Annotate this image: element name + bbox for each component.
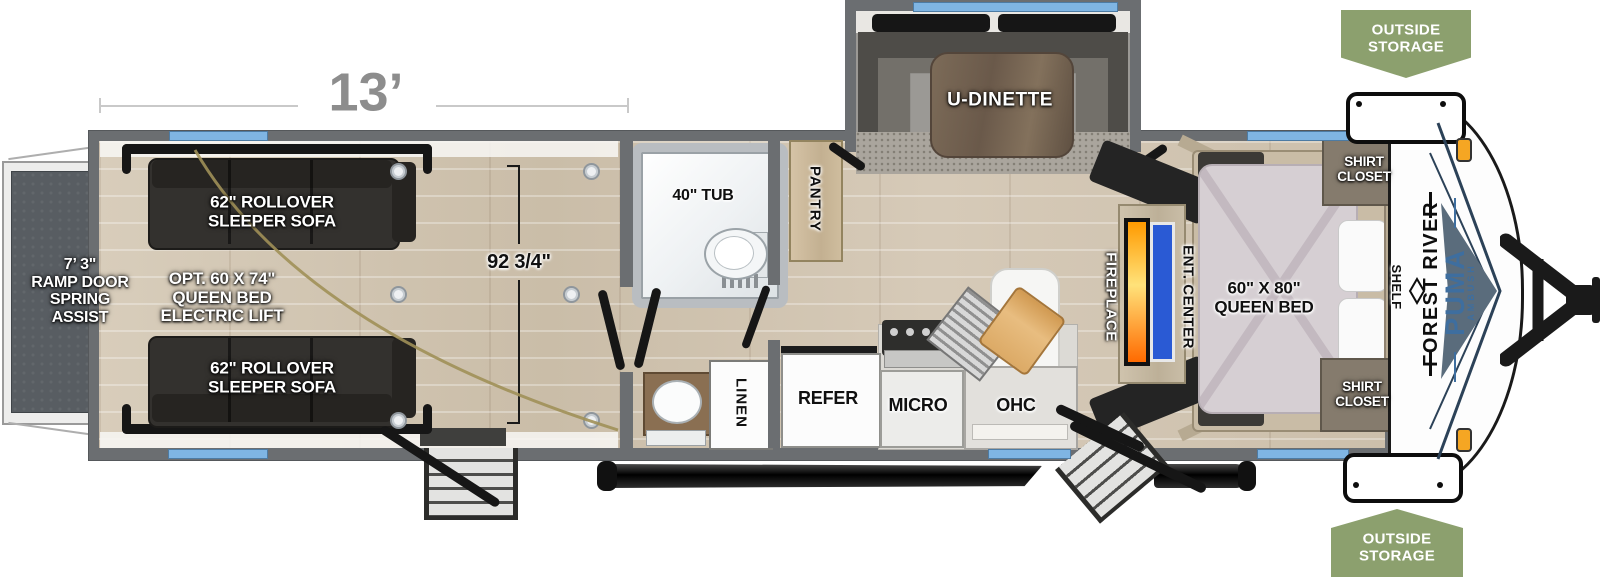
bed-lift-frame-bottom-left-post	[122, 404, 131, 434]
dinette-slide-wall-right	[1130, 0, 1141, 152]
tie-down-ring	[583, 412, 600, 429]
garage-window-bottom	[168, 449, 268, 459]
tie-down-ring	[563, 286, 580, 303]
tv-screen	[1150, 222, 1175, 362]
puma-rule-bottom	[1454, 352, 1456, 382]
forest-river-rule-top	[1429, 192, 1432, 218]
entry-mat-garage-door	[420, 428, 506, 446]
linen-closet	[709, 360, 773, 450]
length-dim-label: 13’	[328, 63, 403, 122]
floorplan-canvas: 13’ OUTSIDE STORAGE OUTSIDE STORAGE U-DI…	[0, 0, 1600, 577]
outside-storage-badge-bottom	[1331, 509, 1463, 577]
ramp-hinge-line-top	[8, 146, 95, 160]
garage-bath-wall-lower	[620, 372, 633, 448]
storage-box-top-rivet-left	[1356, 101, 1362, 107]
marker-light-bottom	[1456, 428, 1472, 452]
length-dim-line-left	[100, 105, 298, 107]
storage-box-bottom-rivet-right	[1437, 482, 1443, 488]
range-burner	[890, 328, 898, 336]
sofa-bottom-cushion-gap-1	[228, 338, 231, 422]
ramp-door-panel	[11, 171, 92, 413]
outside-storage-badge-top	[1341, 10, 1471, 78]
width-dim-tick-top	[507, 165, 520, 167]
door-window-bottom	[988, 449, 1071, 459]
dinette-table-leaf-left	[872, 14, 990, 32]
sleeper-sofa-bottom-back	[152, 394, 392, 422]
dinette-table	[930, 52, 1074, 158]
forest-river-rule-bottom	[1429, 350, 1432, 376]
bedroom-window-bottom	[1257, 449, 1349, 459]
tie-down-ring	[390, 163, 407, 180]
bath-sink-bowl	[652, 380, 702, 424]
bathtub	[632, 143, 788, 308]
sofa-top-cushion-gap-1	[228, 160, 231, 244]
bedroom-window-top	[1247, 131, 1349, 141]
bed-lift-frame-top	[122, 144, 432, 154]
puma-rule-top	[1454, 198, 1456, 228]
overhead-cabinet-trim	[972, 424, 1068, 440]
width-dim-tick-bottom	[507, 422, 520, 424]
garage-platform-bottom	[100, 432, 618, 448]
bed-lift-frame-top-left-post	[122, 144, 131, 174]
dinette-slide-window	[913, 2, 1118, 12]
bed-lift-frame-top-right-post	[423, 144, 432, 174]
range-burner	[906, 328, 914, 336]
length-dim-line-right	[436, 105, 628, 107]
garage-window-top	[169, 131, 268, 141]
bath-step	[646, 430, 706, 446]
tie-down-ring	[390, 286, 407, 303]
sofa-top-cushion-gap-2	[310, 160, 313, 244]
sleeper-sofa-top-back	[152, 160, 392, 188]
hitch-a-frame	[1500, 225, 1600, 375]
microwave	[880, 370, 964, 448]
sofa-bottom-armrest	[392, 338, 416, 418]
bath-kitchen-wall-lower	[768, 340, 780, 448]
awning-roller-left	[606, 464, 1042, 488]
marker-light-top	[1456, 138, 1472, 162]
dinette-table-leaf-right	[998, 14, 1116, 32]
awning-end-cap-right	[1238, 461, 1256, 491]
length-dim-tick-right	[627, 98, 629, 113]
storage-box-bottom-rivet-left	[1353, 482, 1359, 488]
refrigerator	[781, 353, 881, 448]
fireplace-insert	[1124, 218, 1150, 366]
toilet-seat	[714, 236, 754, 270]
tie-down-ring	[583, 163, 600, 180]
bed-pillow-top	[1338, 220, 1388, 292]
bath-kitchen-wall-upper	[768, 141, 780, 285]
garage-bath-wall-upper	[620, 141, 633, 287]
sofa-bottom-cushion-gap-2	[310, 338, 313, 422]
awning-end-cap-left	[597, 461, 617, 491]
dinette-slide-wall-left	[845, 0, 856, 152]
refrigerator-top-trim	[781, 346, 877, 353]
length-dim-tick-left	[99, 98, 101, 113]
front-cap-graphics	[1388, 95, 1518, 487]
width-dim-line-bottom	[518, 280, 520, 424]
width-dim-line-top	[518, 166, 520, 244]
storage-box-top-rivet-right	[1440, 101, 1446, 107]
pantry-cabinet	[789, 140, 843, 262]
bed-lift-frame-bottom-right-post	[423, 404, 432, 434]
tie-down-ring	[390, 412, 407, 429]
